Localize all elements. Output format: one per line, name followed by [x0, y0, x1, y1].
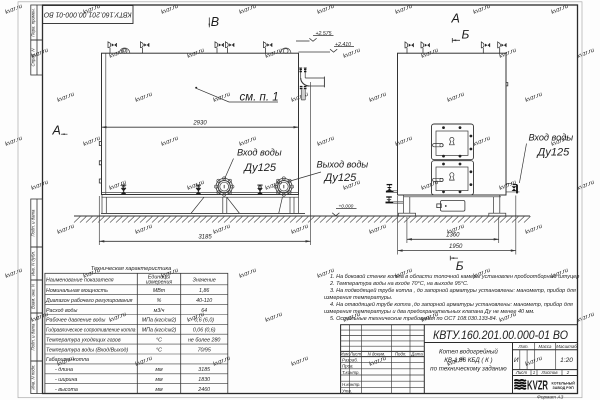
svg-text:3. На подводящей трубе котла: 3. На подводящей трубе котла , до запорн…	[330, 287, 576, 294]
svg-text:Б: Б	[462, 27, 470, 41]
svg-text:2930: 2930	[192, 120, 207, 126]
svg-text:Температура уходящих газов: Температура уходящих газов	[46, 337, 121, 343]
svg-text:Т.контр.: Т.контр.	[342, 370, 360, 375]
svg-text:Ду125: Ду125	[242, 162, 277, 174]
svg-text:Лист: Лист	[515, 370, 528, 375]
svg-text:Масса: Масса	[539, 344, 553, 349]
svg-text:Изм.: Изм.	[340, 351, 349, 356]
svg-text:Ду125: Ду125	[323, 172, 358, 184]
svg-text:+2.410: +2.410	[335, 42, 351, 48]
svg-text:KVZR: KVZR	[527, 377, 548, 392]
svg-text:Техническая характеристика: Техническая характеристика	[91, 266, 172, 272]
svg-text:КОТЕЛЬНЫЙ: КОТЕЛЬНЫЙ	[552, 382, 576, 386]
svg-text:Вход воды: Вход воды	[237, 148, 282, 158]
svg-text:70/95: 70/95	[198, 347, 211, 353]
svg-text:по техническому заданию: по техническому заданию	[430, 365, 507, 372]
svg-text:- высота: - высота	[55, 387, 78, 393]
svg-text:Разраб.: Разраб.	[342, 358, 358, 363]
svg-text:мм: мм	[155, 367, 163, 373]
svg-text:Подп. и дата: Подп. и дата	[30, 209, 35, 237]
svg-text:Инв. N дубл.: Инв. N дубл.	[30, 251, 35, 276]
svg-text:Диапазон рабочего регулировани: Диапазон рабочего регулирования	[45, 298, 133, 304]
svg-text:3185: 3185	[198, 367, 210, 373]
svg-text:КВТУ.160.201.00.000-01 ВО: КВТУ.160.201.00.000-01 ВО	[433, 330, 568, 342]
svg-text:1830: 1830	[198, 377, 210, 383]
svg-text:1360: 1360	[446, 233, 460, 239]
svg-text:N докум.: N докум.	[368, 351, 386, 356]
svg-text:2: 2	[566, 370, 570, 375]
svg-text:Гидравлическое сопротивление к: Гидравлическое сопротивление котла	[46, 328, 136, 334]
svg-text:1950: 1950	[449, 244, 463, 250]
svg-text:2460: 2460	[197, 387, 210, 393]
svg-text:1. На боковой стенке котла в: 1. На боковой стенке котла в области топ…	[330, 273, 579, 280]
svg-text:И: И	[514, 357, 519, 364]
svg-text:Значение: Значение	[193, 277, 216, 283]
svg-text:Формат А3: Формат А3	[537, 394, 564, 400]
svg-text:Пров.: Пров.	[342, 364, 354, 369]
svg-text:Лит.: Лит.	[517, 344, 528, 349]
svg-text:Расход воды: Расход воды	[46, 308, 77, 314]
svg-text:Утв.: Утв.	[342, 388, 352, 393]
svg-text:3185: 3185	[198, 235, 212, 241]
svg-text:64: 64	[201, 308, 207, 314]
svg-text:Лист: Лист	[349, 351, 362, 356]
svg-text:Дата: Дата	[410, 351, 423, 356]
svg-text:ЗАВОД РЭП: ЗАВОД РЭП	[553, 386, 575, 390]
svg-text:МПа (кгс/см2): МПа (кгс/см2)	[142, 328, 177, 334]
svg-text:А: А	[52, 124, 61, 138]
svg-text:Габариты котла: Габариты котла	[46, 357, 89, 363]
svg-text:Инв. N подл.: Инв. N подл.	[30, 364, 35, 389]
svg-text:Подп.: Подп.	[395, 351, 407, 356]
svg-text:мм: мм	[155, 377, 163, 383]
svg-text:В: В	[211, 15, 219, 29]
svg-text:не более 280: не более 280	[188, 337, 220, 343]
svg-text:А: А	[451, 12, 460, 26]
svg-text:измерения температуры.: измерения температуры.	[324, 295, 392, 301]
svg-text:см. п. 1: см. п. 1	[240, 92, 279, 104]
svg-text:измерения температуры и два пр: измерения температуры и два предохраните…	[324, 309, 535, 315]
svg-text:измерения: измерения	[146, 280, 173, 286]
svg-text:0,06 (0,6): 0,06 (0,6)	[193, 328, 216, 334]
svg-text:м3/ч: м3/ч	[154, 308, 165, 314]
svg-text:+0.000: +0.000	[339, 204, 354, 210]
svg-text:2. Температура воды на входе: 2. Температура воды на входе 70°С, на вы…	[329, 281, 468, 287]
svg-text:Масштаб: Масштаб	[556, 344, 577, 349]
svg-text:+2.575: +2.575	[316, 31, 332, 37]
svg-text:Котел водогрейный: Котел водогрейный	[439, 349, 498, 356]
svg-text:Справ. N: Справ. N	[30, 48, 35, 67]
svg-text:МВт: МВт	[153, 288, 166, 294]
svg-text:5. Остальные технические треб: 5. Остальные технические требования по О…	[330, 316, 497, 322]
svg-text:мм: мм	[155, 387, 163, 393]
svg-text:°С: °С	[156, 337, 162, 343]
svg-text:Листов: Листов	[541, 370, 559, 375]
svg-text:%: %	[157, 298, 162, 304]
svg-text:4. На отводящей трубе котла ,: 4. На отводящей трубе котла ,до запорной…	[330, 301, 573, 308]
svg-text:- ширина: - ширина	[55, 377, 77, 383]
svg-text:0,6 (6,0): 0,6 (6,0)	[194, 318, 214, 324]
svg-text:1:20: 1:20	[560, 357, 573, 364]
svg-text:Наименование показателя: Наименование показателя	[46, 277, 114, 283]
svg-text:Взам. инв. N: Взам. инв. N	[30, 283, 35, 309]
svg-text:Вход воды: Вход воды	[529, 132, 574, 142]
svg-text:Номинальная мощность: Номинальная мощность	[46, 288, 108, 294]
svg-text:КВТУ.160.201.00.000-01 ВО: КВТУ.160.201.00.000-01 ВО	[43, 11, 131, 18]
svg-text:Выход воды: Выход воды	[317, 159, 369, 169]
svg-text:Температура воды (Вход/Выход): Температура воды (Вход/Выход)	[46, 347, 128, 353]
svg-text:Ду125: Ду125	[536, 147, 571, 159]
svg-text:Перв. примен.: Перв. примен.	[30, 8, 35, 37]
svg-text:1,86: 1,86	[199, 288, 209, 294]
svg-text:Рабочее давление воды: Рабочее давление воды	[46, 318, 105, 324]
svg-text:Н.контр.: Н.контр.	[342, 382, 361, 387]
svg-text:КВ-1,86 КБД ( К ): КВ-1,86 КБД ( К )	[444, 357, 492, 364]
svg-text:40-110: 40-110	[196, 298, 212, 304]
svg-text:МПа (кгс/см2): МПа (кгс/см2)	[142, 318, 177, 324]
svg-text:Подп. и дата: Подп. и дата	[30, 323, 35, 351]
svg-text:Б: Б	[456, 259, 464, 273]
svg-text:- длина: - длина	[55, 367, 73, 373]
svg-text:°С: °С	[156, 347, 162, 353]
